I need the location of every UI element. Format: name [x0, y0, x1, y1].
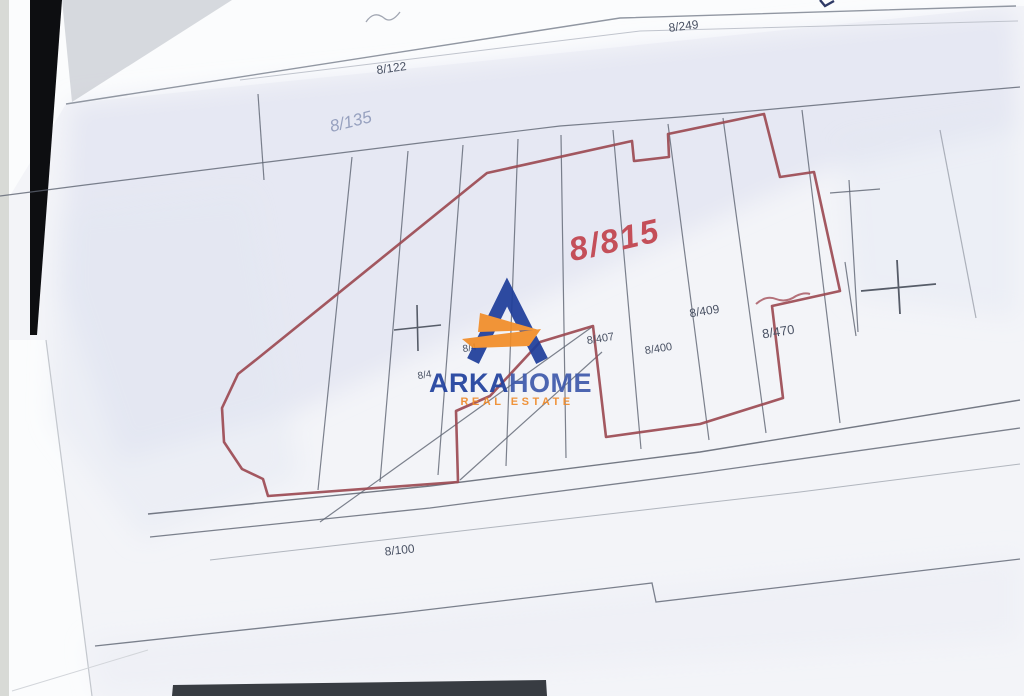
- watermark-brand-secondary: HOME: [509, 368, 592, 398]
- scan-edge-strip: [0, 0, 9, 696]
- watermark-brand-primary: ARKA: [429, 368, 509, 398]
- cadastral-map-canvas: 8/249 8/122 8/135 8/815 8/407 8/400 8/40…: [0, 0, 1024, 696]
- scanned-cadastral-map-photo: 8/249 8/122 8/135 8/815 8/407 8/400 8/40…: [0, 0, 1024, 696]
- tint-right: [840, 112, 1018, 318]
- watermark-tagline: REAL ESTATE: [460, 396, 573, 408]
